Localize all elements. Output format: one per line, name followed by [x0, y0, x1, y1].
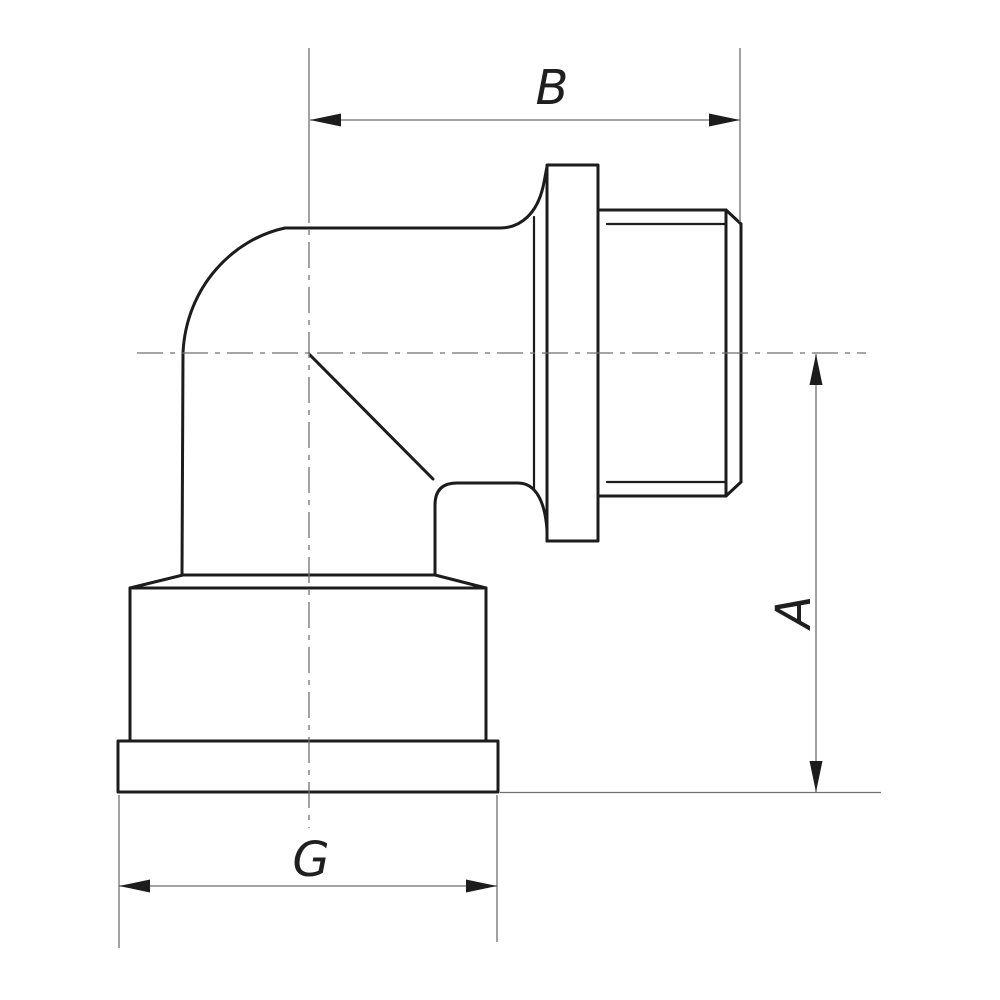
- thread-chamfer-top: [726, 210, 741, 224]
- dim-b-arrow-right: [709, 114, 740, 127]
- body-to-collar-fillet-top: [500, 167, 547, 228]
- construction-lines: [119, 48, 881, 948]
- technical-drawing-page: B A G: [0, 0, 1000, 1000]
- thread-chamfer-bottom: [726, 482, 741, 496]
- dim-g-arrow-right: [466, 880, 497, 893]
- socket-flange-outline: [118, 741, 498, 792]
- dim-g-arrow-left: [119, 880, 150, 893]
- part-outline: [118, 165, 741, 792]
- dim-a-arrow-top: [810, 354, 823, 385]
- bore-diagonal-edge: [310, 355, 433, 479]
- elbow-fitting-drawing: B A G: [0, 0, 1000, 1000]
- body-left-curve: [182, 228, 285, 575]
- dimension-arrowheads: [119, 114, 823, 893]
- dim-a-arrow-bottom: [810, 761, 823, 792]
- dimension-labels: B A G: [292, 60, 822, 888]
- socket-shoulder-left: [130, 575, 183, 588]
- socket-shoulder-right: [435, 575, 486, 588]
- dim-g-label: G: [292, 832, 329, 888]
- dim-b-arrow-left: [310, 114, 341, 127]
- dim-a-label: A: [766, 596, 822, 632]
- branch-bottom-and-neck-edge: [435, 483, 547, 575]
- dim-b-label: B: [536, 60, 569, 116]
